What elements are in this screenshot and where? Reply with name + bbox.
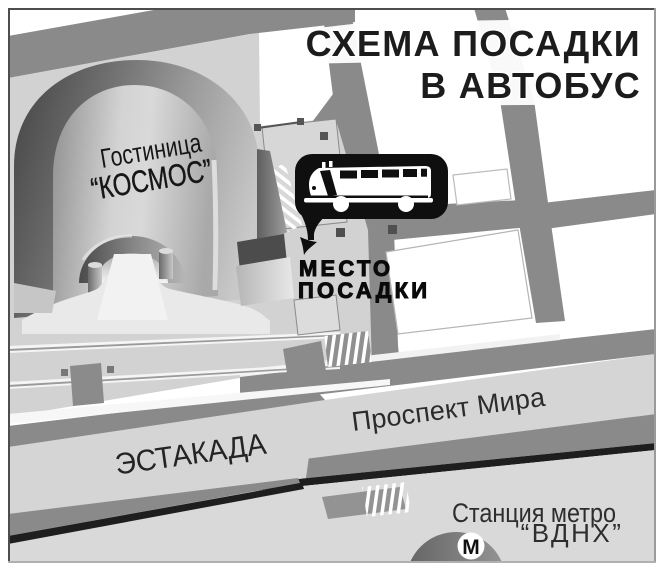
svg-text:ПОСАДКИ: ПОСАДКИ [298, 278, 430, 303]
svg-text:“ВДНХ”: “ВДНХ” [521, 518, 624, 548]
svg-text:М: М [462, 536, 480, 559]
svg-text:СХЕМА ПОСАДКИ: СХЕМА ПОСАДКИ [306, 23, 641, 64]
svg-text:В АВТОБУС: В АВТОБУС [420, 65, 641, 106]
